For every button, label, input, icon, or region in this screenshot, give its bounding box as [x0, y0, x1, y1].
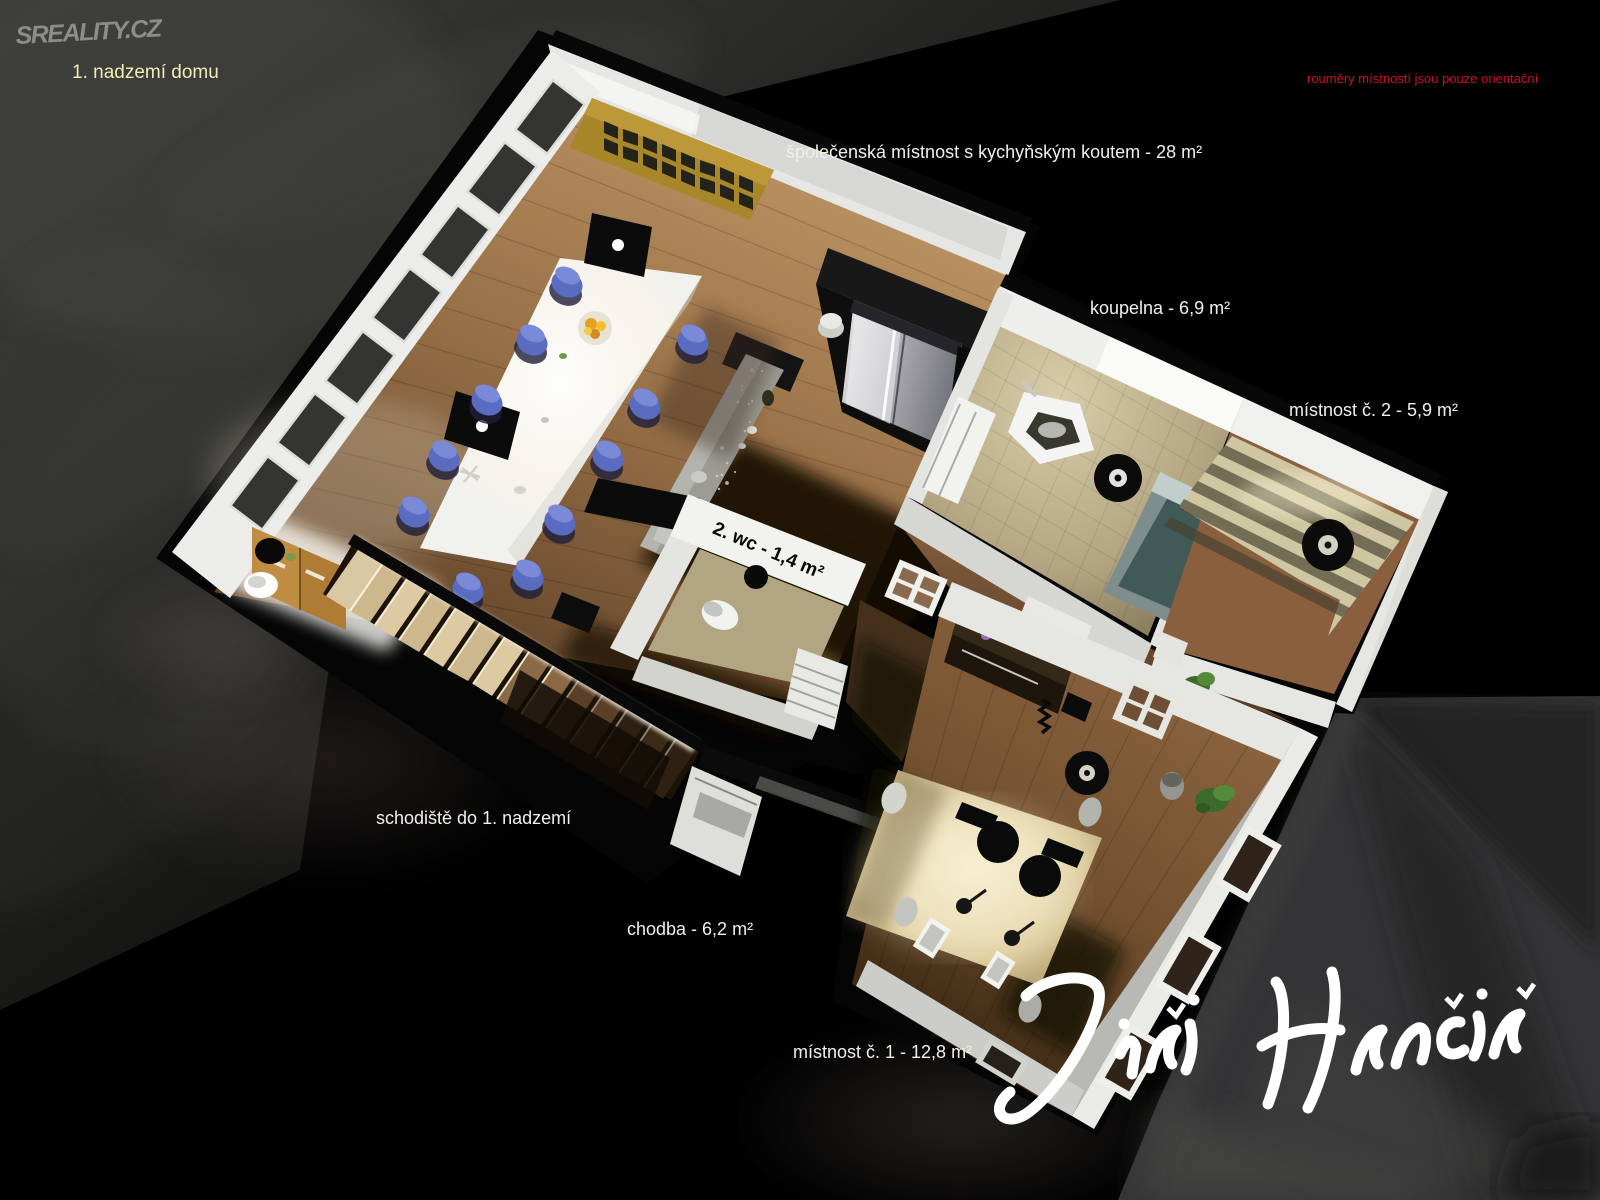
svg-text:rouměry místností jsou pouze o: rouměry místností jsou pouze orientační	[1307, 71, 1539, 86]
svg-text:špolečenská místnost s kychyňs: špolečenská místnost s kychyňským koutem…	[786, 142, 1202, 162]
svg-text:1. nadzemí domu: 1. nadzemí domu	[72, 62, 219, 83]
svg-text:chodba - 6,2 m²: chodba - 6,2 m²	[627, 919, 753, 939]
svg-text:schodiště do 1. nadzemí: schodiště do 1. nadzemí	[376, 808, 571, 828]
svg-text:místnost č. 1 - 12,8 m²: místnost č. 1 - 12,8 m²	[793, 1042, 972, 1062]
svg-text:místnost č. 2 - 5,9 m²: místnost č. 2 - 5,9 m²	[1289, 400, 1458, 420]
svg-text:koupelna - 6,9 m²: koupelna - 6,9 m²	[1090, 298, 1230, 318]
